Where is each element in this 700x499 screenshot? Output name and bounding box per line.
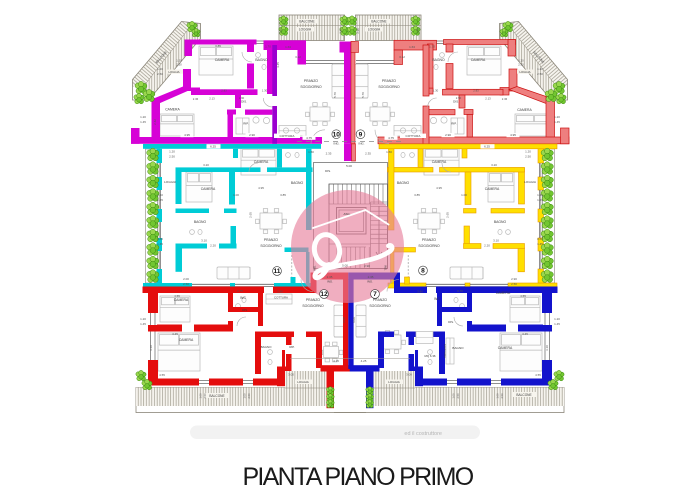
- svg-text:1.45: 1.45: [140, 120, 146, 124]
- svg-text:6.25: 6.25: [484, 145, 490, 149]
- svg-text:1.45: 1.45: [157, 242, 163, 246]
- svg-text:BAGNO: BAGNO: [432, 58, 445, 62]
- svg-text:ING.: ING.: [327, 280, 333, 284]
- svg-text:1.20: 1.20: [169, 150, 175, 154]
- svg-text:4.45: 4.45: [276, 62, 280, 68]
- svg-text:1.00: 1.00: [496, 393, 500, 399]
- svg-text:SOGGIORNO: SOGGIORNO: [369, 304, 391, 308]
- svg-text:ING.: ING.: [313, 265, 317, 271]
- svg-text:LOGGIA: LOGGIA: [388, 380, 400, 384]
- svg-text:MQ 6.36: MQ 6.36: [424, 354, 435, 358]
- svg-text:4.55: 4.55: [174, 294, 180, 298]
- svg-text:RIP.: RIP.: [289, 345, 294, 349]
- svg-text:2.50: 2.50: [183, 282, 189, 286]
- svg-text:4.75: 4.75: [388, 136, 394, 140]
- svg-text:0.60: 0.60: [537, 237, 543, 241]
- svg-text:6.25: 6.25: [210, 145, 216, 149]
- svg-text:1.40: 1.40: [157, 193, 163, 197]
- svg-text:10: 10: [333, 131, 341, 138]
- svg-text:DIS.: DIS.: [448, 320, 454, 324]
- svg-text:2.35: 2.35: [326, 152, 332, 156]
- svg-text:BALCONE: BALCONE: [299, 20, 314, 24]
- svg-text:1.63: 1.63: [285, 45, 291, 49]
- svg-text:ASC.: ASC.: [343, 212, 350, 216]
- svg-text:ING.: ING.: [367, 280, 373, 284]
- svg-text:COTTURA: COTTURA: [406, 134, 422, 138]
- svg-text:1.45: 1.45: [537, 198, 543, 202]
- svg-text:SOGGIORNO: SOGGIORNO: [418, 244, 440, 248]
- svg-text:LOGGIA: LOGGIA: [524, 180, 537, 184]
- svg-text:1.20: 1.20: [140, 317, 146, 321]
- svg-text:SOGGIORNO: SOGGIORNO: [300, 85, 322, 89]
- svg-text:2.35: 2.35: [368, 275, 374, 279]
- svg-text:DIS.: DIS.: [242, 308, 248, 312]
- svg-text:CAMERA: CAMERA: [471, 58, 486, 62]
- svg-text:SOGGIORNO: SOGGIORNO: [260, 244, 282, 248]
- svg-text:2.90: 2.90: [511, 277, 517, 281]
- svg-text:ed il costruttore: ed il costruttore: [404, 431, 442, 437]
- svg-text:4.95: 4.95: [258, 186, 264, 190]
- svg-text:BAGNO: BAGNO: [494, 220, 507, 224]
- svg-text:4.95: 4.95: [510, 133, 516, 137]
- svg-text:CAMERA: CAMERA: [517, 108, 532, 112]
- svg-text:1.45: 1.45: [157, 198, 163, 202]
- svg-text:1.45: 1.45: [537, 242, 543, 246]
- svg-text:1.45: 1.45: [554, 322, 560, 326]
- svg-text:1.70: 1.70: [265, 45, 271, 49]
- svg-text:1.63: 1.63: [409, 45, 415, 49]
- svg-text:3.12: 3.12: [295, 55, 301, 59]
- svg-text:2.65: 2.65: [446, 212, 450, 218]
- svg-text:3.45: 3.45: [172, 332, 178, 336]
- svg-text:2.50: 2.50: [511, 282, 517, 286]
- svg-text:1.50: 1.50: [308, 150, 314, 154]
- svg-text:LOGGIA: LOGGIA: [299, 28, 312, 32]
- svg-text:4.95: 4.95: [184, 133, 190, 137]
- svg-text:BAGNO: BAGNO: [452, 346, 464, 350]
- svg-text:PRANZO: PRANZO: [304, 79, 318, 83]
- svg-text:1.20: 1.20: [554, 317, 560, 321]
- svg-text:1.00: 1.00: [461, 193, 467, 197]
- svg-text:COTTURA: COTTURA: [274, 296, 288, 300]
- svg-text:RIP.: RIP.: [243, 122, 249, 126]
- svg-text:5.00: 5.00: [342, 264, 348, 268]
- svg-text:3.10: 3.10: [493, 239, 499, 243]
- svg-text:9: 9: [359, 131, 363, 138]
- svg-text:2.20: 2.20: [484, 244, 490, 248]
- svg-text:CAMERA: CAMERA: [485, 187, 500, 191]
- svg-text:2.50: 2.50: [500, 393, 504, 399]
- svg-text:1.50: 1.50: [386, 150, 392, 154]
- svg-text:3.85: 3.85: [215, 44, 221, 48]
- svg-text:2.75: 2.75: [237, 289, 243, 293]
- svg-text:11: 11: [274, 268, 281, 275]
- svg-text:2.13: 2.13: [209, 97, 215, 101]
- svg-text:3.20: 3.20: [491, 163, 497, 167]
- svg-text:3.10: 3.10: [545, 345, 549, 351]
- svg-text:2.42: 2.42: [153, 119, 157, 125]
- svg-text:2.50: 2.50: [525, 155, 531, 159]
- svg-text:CAMERA: CAMERA: [498, 346, 513, 350]
- svg-text:2.65: 2.65: [249, 212, 253, 218]
- svg-text:2.20: 2.20: [210, 244, 216, 248]
- svg-text:2.90: 2.90: [249, 133, 255, 137]
- svg-text:6.00: 6.00: [352, 317, 356, 323]
- svg-text:2.83: 2.83: [473, 89, 479, 93]
- svg-text:4.55: 4.55: [520, 294, 526, 298]
- svg-text:1.30: 1.30: [262, 89, 268, 93]
- svg-text:SOGGIORNO: SOGGIORNO: [302, 304, 324, 308]
- svg-text:5.00: 5.00: [346, 164, 352, 168]
- svg-text:1.00: 1.00: [452, 393, 456, 399]
- svg-text:LOGGIA: LOGGIA: [368, 28, 381, 32]
- svg-text:ING.: ING.: [334, 141, 340, 145]
- svg-text:2.90: 2.90: [445, 133, 451, 137]
- svg-text:4.75: 4.75: [306, 136, 312, 140]
- svg-text:PRANZO: PRANZO: [306, 298, 320, 302]
- svg-text:RIP.: RIP.: [451, 122, 457, 126]
- svg-text:2.90: 2.90: [239, 96, 245, 100]
- svg-text:ING.: ING.: [384, 265, 388, 271]
- svg-text:COTTURA: COTTURA: [280, 134, 296, 138]
- svg-text:ING.: ING.: [359, 141, 365, 145]
- svg-text:4.55: 4.55: [535, 373, 541, 377]
- svg-text:PRANZO: PRANZO: [382, 79, 396, 83]
- svg-text:BAGNO: BAGNO: [397, 181, 410, 185]
- svg-text:2.13: 2.13: [485, 97, 491, 101]
- svg-text:1.20: 1.20: [554, 115, 560, 119]
- svg-text:PIANTA PIANO PRIMO: PIANTA PIANO PRIMO: [242, 463, 473, 491]
- svg-text:2.50: 2.50: [537, 72, 543, 76]
- svg-text:2.50: 2.50: [157, 72, 163, 76]
- svg-text:2.36: 2.36: [193, 97, 199, 101]
- svg-text:3.80: 3.80: [417, 290, 423, 294]
- svg-text:WC: WC: [240, 296, 246, 300]
- svg-text:2.90: 2.90: [364, 264, 370, 268]
- svg-text:4.25: 4.25: [361, 359, 367, 363]
- svg-text:BALCONE: BALCONE: [371, 20, 386, 24]
- svg-text:1.20: 1.20: [537, 67, 543, 71]
- svg-text:CAMERA: CAMERA: [496, 291, 511, 295]
- svg-text:3.00: 3.00: [288, 373, 294, 377]
- svg-text:BALCONE: BALCONE: [209, 394, 224, 398]
- svg-text:6.00: 6.00: [342, 317, 346, 323]
- svg-text:1.20: 1.20: [157, 67, 163, 71]
- svg-text:1.00: 1.00: [243, 393, 247, 399]
- svg-text:CAMERA: CAMERA: [201, 187, 216, 191]
- svg-text:1.00: 1.00: [199, 393, 203, 399]
- svg-text:3.45: 3.45: [522, 332, 528, 336]
- svg-text:2.35: 2.35: [365, 152, 371, 156]
- svg-text:CAMERA: CAMERA: [432, 160, 447, 164]
- svg-text:3.12: 3.12: [399, 55, 405, 59]
- svg-text:2.50: 2.50: [456, 393, 460, 399]
- svg-text:1.20: 1.20: [525, 150, 531, 154]
- svg-text:BAGNO: BAGNO: [291, 181, 304, 185]
- svg-text:LOGGIA: LOGGIA: [519, 70, 530, 74]
- svg-text:BAGNO: BAGNO: [261, 345, 273, 349]
- svg-text:2.00: 2.00: [183, 277, 189, 281]
- svg-text:1.45: 1.45: [140, 322, 146, 326]
- svg-text:2.30: 2.30: [416, 28, 420, 34]
- svg-text:CAMERA: CAMERA: [165, 108, 180, 112]
- svg-text:SOGGIORNO: SOGGIORNO: [378, 85, 400, 89]
- svg-text:WC: WC: [434, 297, 440, 301]
- svg-text:LOGGIA: LOGGIA: [297, 380, 309, 384]
- svg-text:2.50: 2.50: [518, 63, 524, 67]
- svg-text:PRANZO: PRANZO: [264, 238, 278, 242]
- svg-text:2.50: 2.50: [176, 63, 182, 67]
- svg-text:3.10: 3.10: [201, 239, 207, 243]
- svg-text:COTTURA: COTTURA: [443, 344, 447, 358]
- svg-text:2.30: 2.30: [279, 28, 283, 34]
- svg-text:BALCONE: BALCONE: [516, 393, 531, 397]
- svg-text:1.30: 1.30: [433, 89, 439, 93]
- svg-text:4.15: 4.15: [333, 359, 339, 363]
- svg-text:CAMERA: CAMERA: [179, 338, 194, 342]
- svg-text:DIS.: DIS.: [453, 100, 459, 104]
- svg-text:CAMERA: CAMERA: [215, 58, 230, 62]
- svg-text:3.10: 3.10: [149, 345, 153, 351]
- svg-text:BAGNO: BAGNO: [255, 58, 268, 62]
- svg-text:CAMERA: CAMERA: [174, 298, 189, 302]
- svg-text:2.36: 2.36: [356, 28, 360, 34]
- svg-text:1.00: 1.00: [233, 193, 239, 197]
- svg-text:12: 12: [320, 291, 328, 298]
- svg-text:5.70: 5.70: [333, 92, 337, 98]
- svg-text:DIS.: DIS.: [325, 169, 331, 173]
- svg-text:LOGGIA: LOGGIA: [168, 70, 179, 74]
- svg-text:2.83: 2.83: [221, 89, 227, 93]
- svg-text:1.70: 1.70: [429, 45, 435, 49]
- svg-text:1.40: 1.40: [537, 193, 543, 197]
- svg-text:3.85: 3.85: [414, 193, 420, 197]
- svg-text:8: 8: [421, 268, 425, 275]
- svg-text:2.35: 2.35: [327, 275, 333, 279]
- svg-text:2.88: 2.88: [339, 28, 343, 34]
- svg-text:3.85: 3.85: [280, 193, 286, 197]
- svg-text:3.80: 3.80: [277, 290, 283, 294]
- svg-text:3.20: 3.20: [203, 163, 209, 167]
- svg-text:2.50: 2.50: [169, 155, 175, 159]
- svg-text:PRANZO: PRANZO: [422, 238, 436, 242]
- svg-text:5.70: 5.70: [361, 92, 365, 98]
- svg-text:1.45: 1.45: [554, 120, 560, 124]
- svg-text:2.50: 2.50: [247, 393, 251, 399]
- svg-text:4.55: 4.55: [159, 373, 165, 377]
- svg-text:4.95: 4.95: [436, 186, 442, 190]
- svg-text:LOGGIA: LOGGIA: [164, 180, 177, 184]
- svg-text:7: 7: [373, 291, 377, 298]
- svg-text:BAGNO: BAGNO: [194, 220, 207, 224]
- svg-text:0.70: 0.70: [457, 289, 463, 293]
- svg-text:2.50: 2.50: [203, 393, 207, 399]
- svg-text:2.36: 2.36: [502, 97, 508, 101]
- svg-text:3.00: 3.00: [406, 373, 412, 377]
- svg-text:0.80: 0.80: [157, 237, 163, 241]
- svg-text:1.20: 1.20: [140, 115, 146, 119]
